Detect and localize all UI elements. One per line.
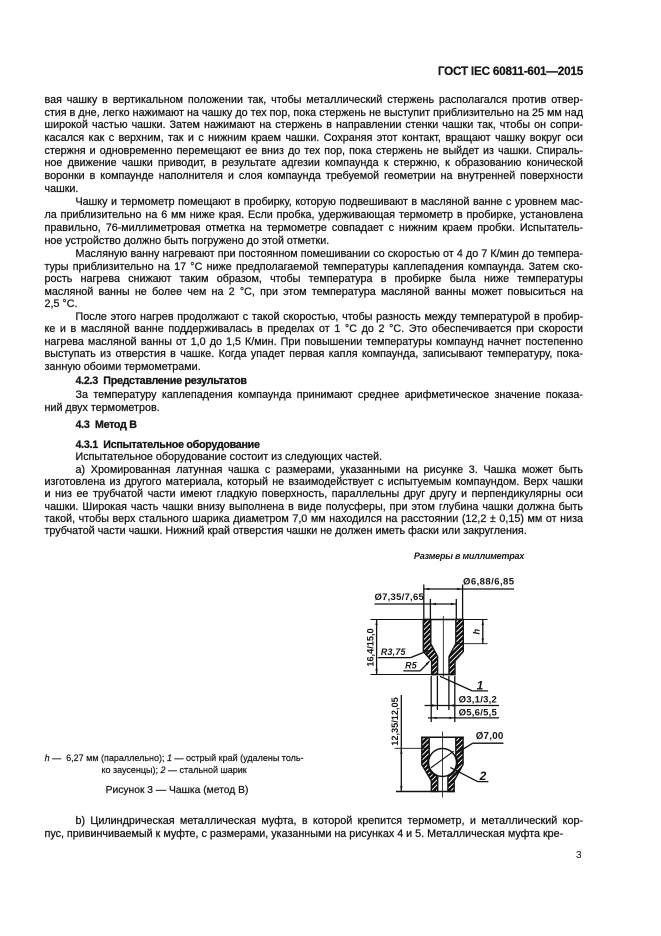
- svg-text:Ø6,88/6,85: Ø6,88/6,85: [463, 577, 515, 588]
- svg-text:Размеры в миллиметрах: Размеры в миллиметрах: [414, 551, 525, 561]
- svg-text:Ø7,35/7,65: Ø7,35/7,65: [375, 592, 425, 603]
- svg-text:h: h: [471, 629, 481, 635]
- svg-text:12,35/12,05: 12,35/12,05: [390, 697, 400, 746]
- svg-text:R5: R5: [405, 661, 417, 671]
- svg-text:Ø7,00: Ø7,00: [476, 731, 504, 742]
- svg-text:1: 1: [477, 678, 484, 692]
- svg-text:2: 2: [479, 769, 487, 783]
- svg-text:Ø3,1/3,2: Ø3,1/3,2: [459, 695, 497, 706]
- svg-text:R3,75: R3,75: [381, 647, 406, 657]
- svg-text:Ø5,6/5,5: Ø5,6/5,5: [459, 708, 498, 719]
- svg-text:16,4/15,0: 16,4/15,0: [366, 628, 376, 666]
